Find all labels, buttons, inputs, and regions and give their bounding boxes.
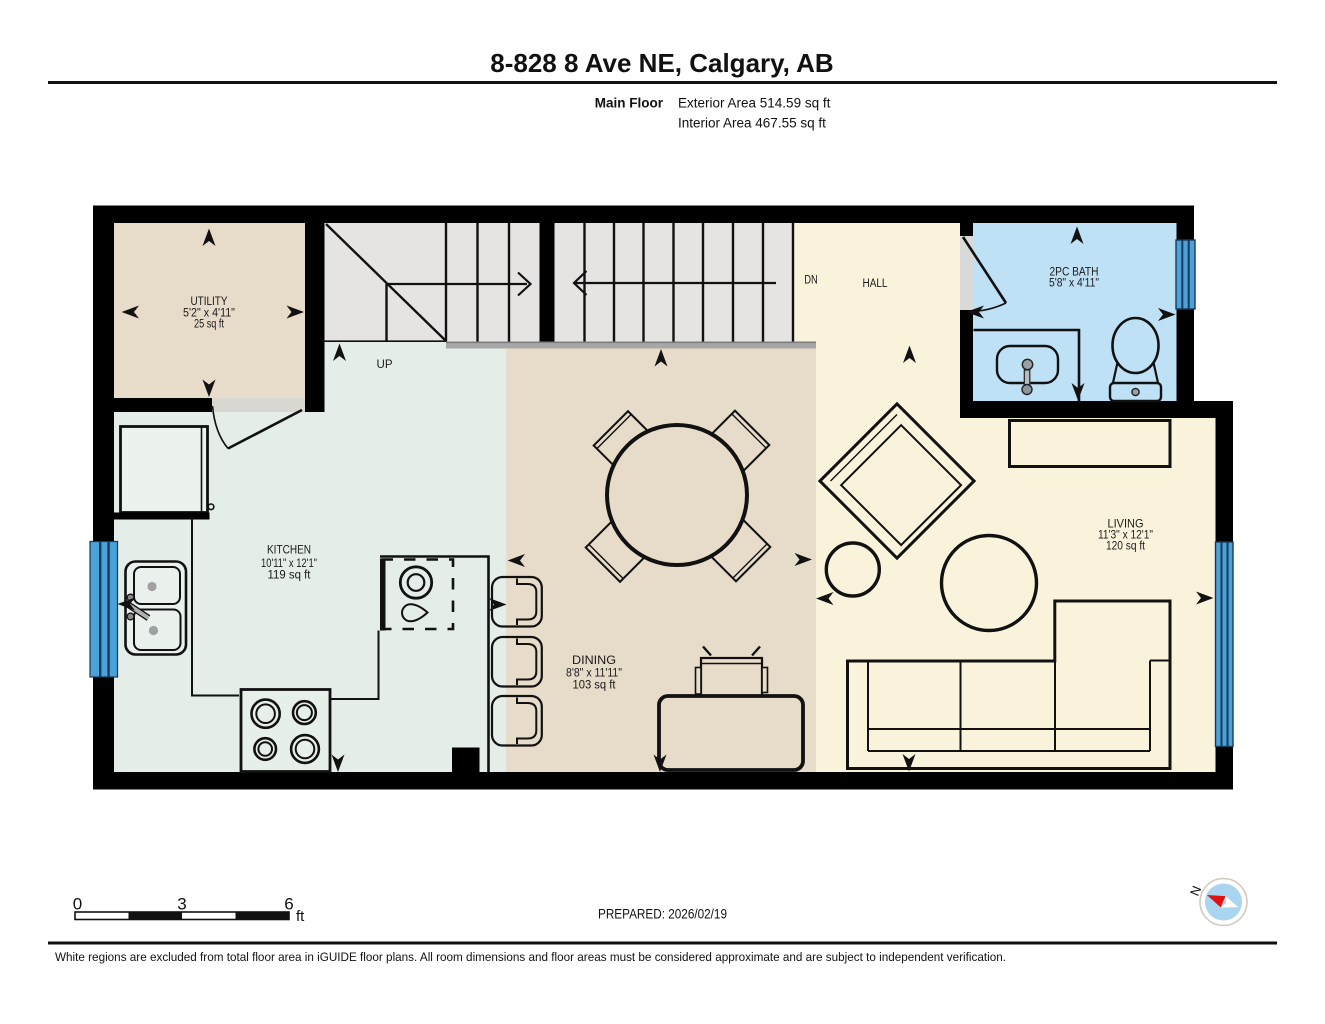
svg-text:White regions are excluded fro: White regions are excluded from total fl… (55, 950, 1006, 964)
svg-text:3: 3 (177, 895, 186, 914)
svg-text:HALL: HALL (863, 278, 889, 290)
svg-text:6: 6 (284, 895, 293, 914)
svg-text:DN: DN (804, 275, 818, 287)
svg-text:5'8" x 4'11": 5'8" x 4'11" (1049, 276, 1099, 290)
svg-text:25 sq ft: 25 sq ft (194, 317, 224, 331)
svg-text:Exterior Area 514.59 sq ft: Exterior Area 514.59 sq ft (678, 96, 831, 111)
svg-text:0: 0 (73, 895, 82, 914)
svg-text:8-828 8 Ave NE, Calgary, AB: 8-828 8 Ave NE, Calgary, AB (490, 48, 833, 78)
svg-text:120 sq ft: 120 sq ft (1106, 539, 1145, 553)
svg-text:Interior Area 467.55 sq ft: Interior Area 467.55 sq ft (678, 116, 826, 131)
svg-text:Main Floor: Main Floor (595, 96, 664, 111)
svg-text:UP: UP (377, 359, 393, 371)
svg-text:PREPARED: 2026/02/19: PREPARED: 2026/02/19 (598, 906, 727, 922)
svg-text:KITCHEN: KITCHEN (267, 543, 311, 557)
svg-text:119 sq ft: 119 sq ft (268, 568, 312, 582)
svg-text:103 sq ft: 103 sq ft (573, 678, 617, 692)
svg-text:ft: ft (296, 908, 305, 925)
